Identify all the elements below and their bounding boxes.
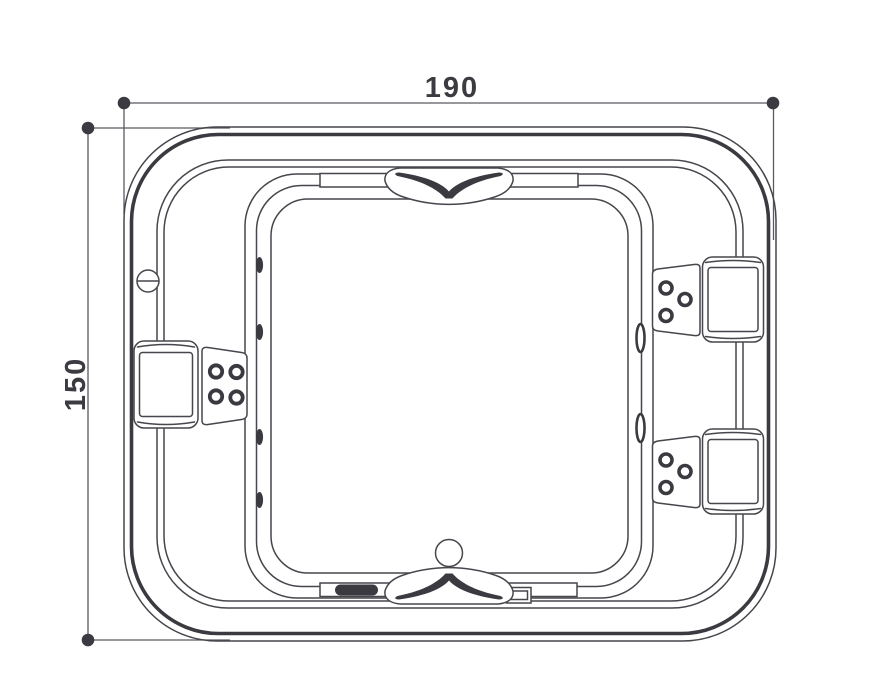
- wall-jet: [256, 429, 263, 445]
- jet-nozzle: [660, 282, 672, 294]
- basin-rim-middle: [257, 186, 642, 587]
- jet-panel: [653, 436, 701, 507]
- wall-jet: [256, 324, 263, 340]
- right-wall-jets: [637, 324, 645, 442]
- dimension-endpoint-dot: [82, 122, 95, 135]
- drain: [436, 540, 463, 567]
- wall-jet: [637, 414, 645, 442]
- spa-top-view-drawing: 190 150: [0, 0, 870, 683]
- height-dimension-label: 150: [60, 357, 92, 411]
- groove-inner-line: [164, 167, 736, 601]
- width-dimension-label: 190: [425, 72, 479, 104]
- control-knob: [137, 270, 159, 292]
- jet-nozzle: [660, 454, 672, 466]
- right-seat-top: [653, 257, 764, 342]
- grab-grip-pad: [335, 585, 378, 596]
- jet-nozzle: [660, 482, 672, 494]
- wall-jet: [256, 257, 263, 273]
- right-seat-bottom: [653, 429, 764, 514]
- jet-nozzle: [210, 365, 222, 377]
- dimension-endpoint-dot: [767, 97, 780, 110]
- spa-dimension-diagram: 190 150: [0, 0, 870, 683]
- jet-nozzle: [679, 466, 691, 478]
- left-seat: [134, 341, 247, 428]
- jet-nozzle: [660, 310, 672, 322]
- dimension-endpoint-dot: [82, 634, 95, 647]
- jet-nozzle: [230, 366, 242, 378]
- wall-jet: [256, 492, 263, 508]
- basin-floor-edge: [271, 199, 628, 573]
- width-dimension: 190: [118, 72, 780, 240]
- jet-panel: [202, 347, 247, 424]
- jet-nozzle: [230, 391, 242, 403]
- dimension-endpoint-dot: [118, 97, 131, 110]
- wall-jet: [637, 324, 645, 352]
- jet-panel: [653, 264, 701, 335]
- jet-nozzle: [210, 390, 222, 402]
- square-headrest-face: [140, 353, 193, 417]
- square-headrest-face: [708, 268, 758, 332]
- rim-ledge-segments: [320, 174, 578, 604]
- jet-nozzle: [679, 294, 691, 306]
- ledge-segment: [509, 174, 578, 188]
- square-headrest-face: [708, 440, 758, 504]
- basin-rim-outer: [245, 174, 653, 598]
- ledge-segment: [320, 174, 391, 188]
- basin: [245, 174, 653, 598]
